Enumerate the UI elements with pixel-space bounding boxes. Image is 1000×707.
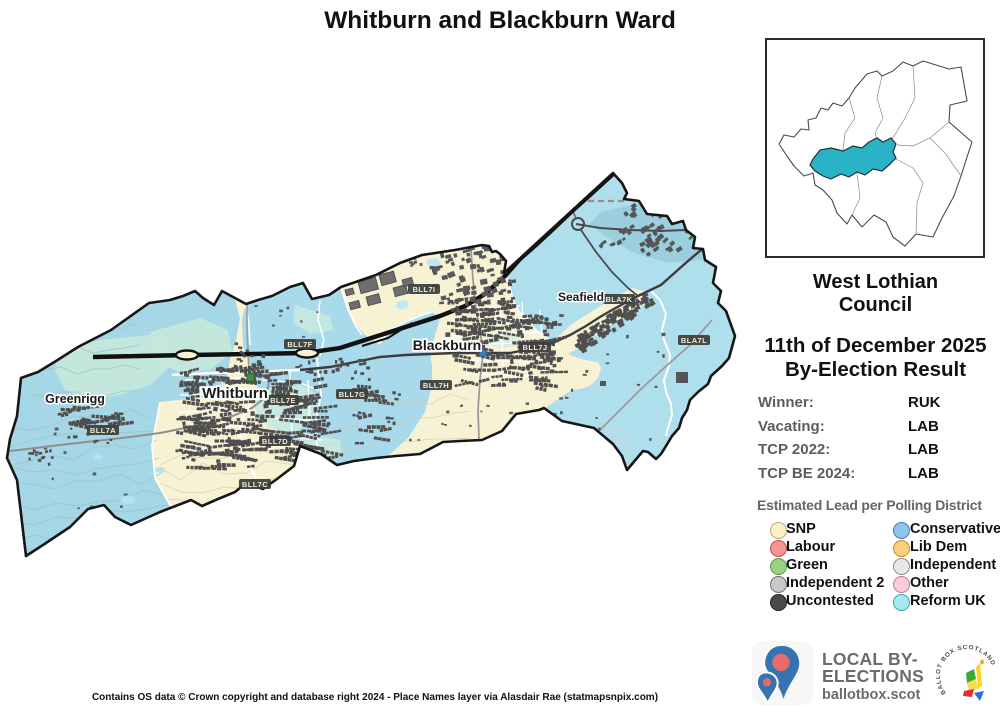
svg-text:BLL7C: BLL7C: [242, 480, 268, 489]
svg-text:BLA7K: BLA7K: [605, 295, 632, 304]
svg-text:BLL7J: BLL7J: [523, 343, 548, 352]
svg-text:Greenrigg: Greenrigg: [45, 392, 105, 406]
svg-text:BLL7D: BLL7D: [262, 437, 288, 446]
svg-text:BLL7A: BLL7A: [90, 426, 116, 435]
svg-text:BLL7F: BLL7F: [287, 340, 312, 349]
svg-text:Whitburn: Whitburn: [202, 385, 268, 402]
svg-text:BLL7E: BLL7E: [270, 396, 296, 405]
svg-text:BLL7G: BLL7G: [339, 390, 366, 399]
svg-text:BLL7I: BLL7I: [413, 285, 436, 294]
svg-text:Blackburn: Blackburn: [413, 337, 481, 353]
svg-text:Seafield: Seafield: [558, 290, 604, 304]
svg-text:BLA7L: BLA7L: [681, 336, 707, 345]
svg-text:BLL7H: BLL7H: [423, 381, 449, 390]
